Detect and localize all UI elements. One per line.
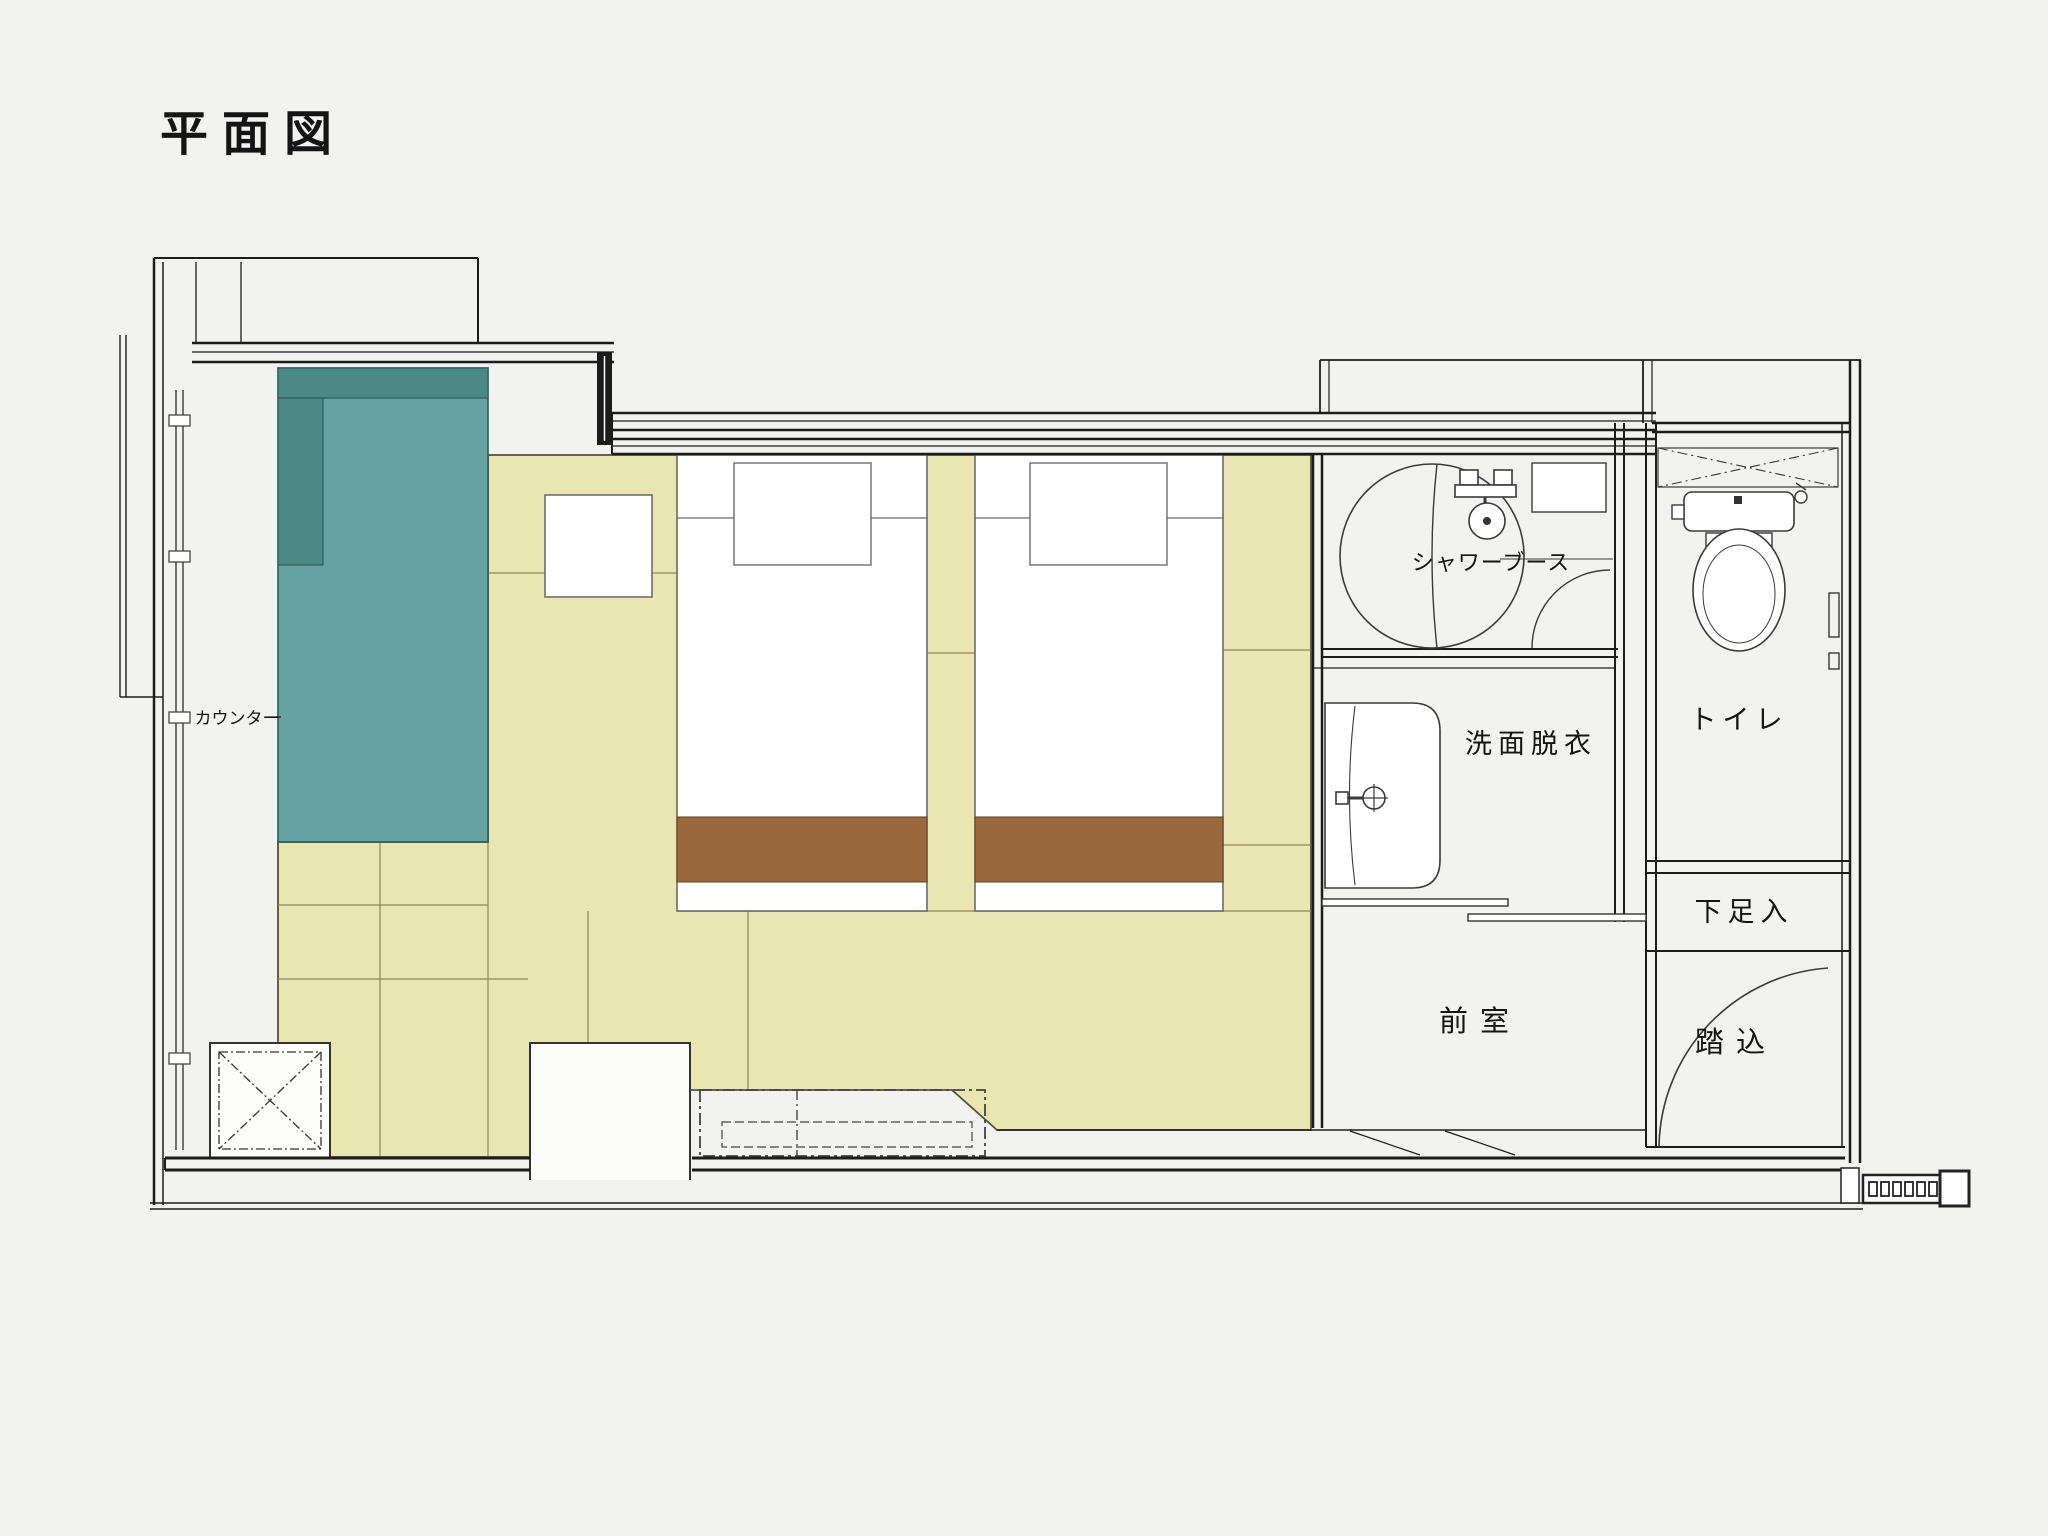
counter-upper-shelf (278, 368, 488, 398)
floor-plan-drawing: 平面図 カウンター シャワーブース 洗面脱衣 トイレ 下足入 前室 踏込 (0, 0, 2048, 1536)
wall-fixture-2 (1829, 653, 1839, 669)
label-counter: カウンター (195, 709, 280, 729)
low-window-notch (530, 1043, 690, 1180)
bed-runner-1 (677, 817, 927, 882)
label-shoe-storage: 下足入 (1695, 897, 1794, 928)
overhead-cabinet-dashed (700, 1090, 985, 1156)
shower-bench (1532, 463, 1606, 512)
label-washroom: 洗面脱衣 (1465, 729, 1597, 760)
pillow-2 (1030, 463, 1167, 565)
label-anteroom: 前室 (1439, 1004, 1521, 1038)
page-title: 平面図 (160, 106, 346, 162)
door-threshold (1841, 1168, 1859, 1203)
bed-1 (677, 455, 927, 911)
counter-top (278, 368, 488, 842)
toilet-room (1658, 448, 1839, 669)
side-table (545, 495, 652, 597)
entrance-mat (1841, 1168, 1969, 1206)
label-shower-booth: シャワーブース (1412, 551, 1571, 576)
mat-end-block (1940, 1171, 1969, 1206)
pillow-1 (734, 463, 871, 565)
sliding-door (1322, 899, 1646, 921)
toilet-icon (1672, 483, 1807, 651)
label-entry-step: 踏込 (1695, 1025, 1777, 1059)
wall-fixture-1 (1829, 593, 1839, 637)
washroom-sink (1325, 703, 1440, 888)
overhead-shelf-x-box (1658, 448, 1838, 487)
bed-2 (975, 455, 1223, 911)
window-left (169, 390, 190, 1150)
bed-runner-2 (975, 817, 1223, 882)
label-toilet: トイレ (1690, 705, 1789, 736)
floor-plan-page: 平面図 カウンター シャワーブース 洗面脱衣 トイレ 下足入 前室 踏込 (0, 0, 2048, 1536)
crossed-service-box (210, 1043, 330, 1158)
counter-side-shelf (278, 398, 323, 565)
shower-door-swing-arc (1532, 570, 1610, 648)
